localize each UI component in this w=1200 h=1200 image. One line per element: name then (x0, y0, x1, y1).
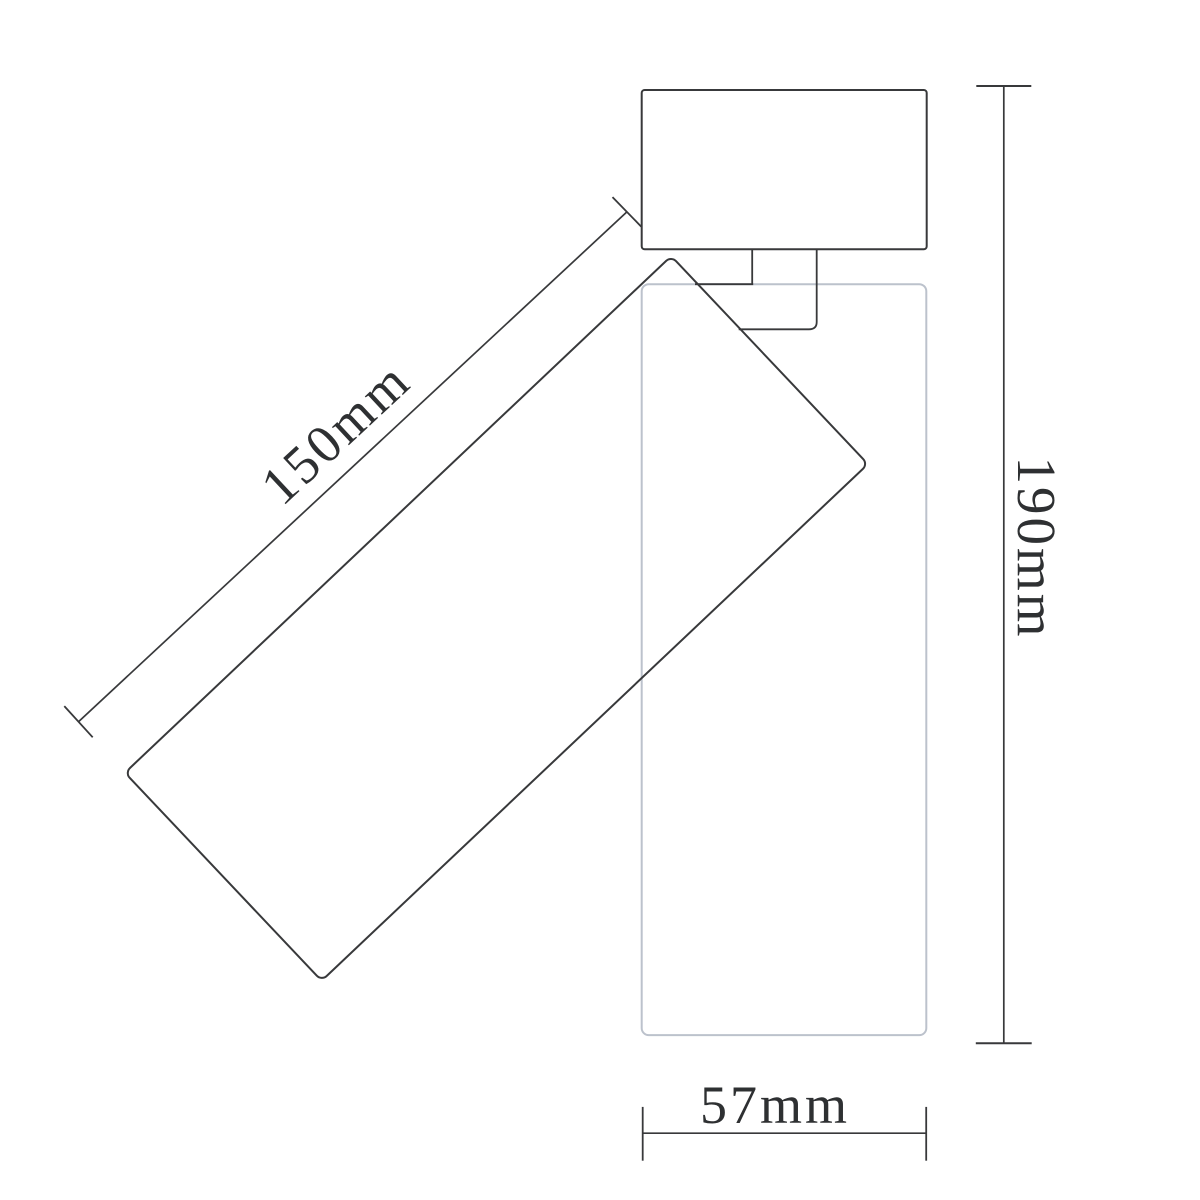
svg-text:190mm: 190mm (1006, 456, 1067, 639)
svg-text:57mm: 57mm (700, 1075, 850, 1135)
